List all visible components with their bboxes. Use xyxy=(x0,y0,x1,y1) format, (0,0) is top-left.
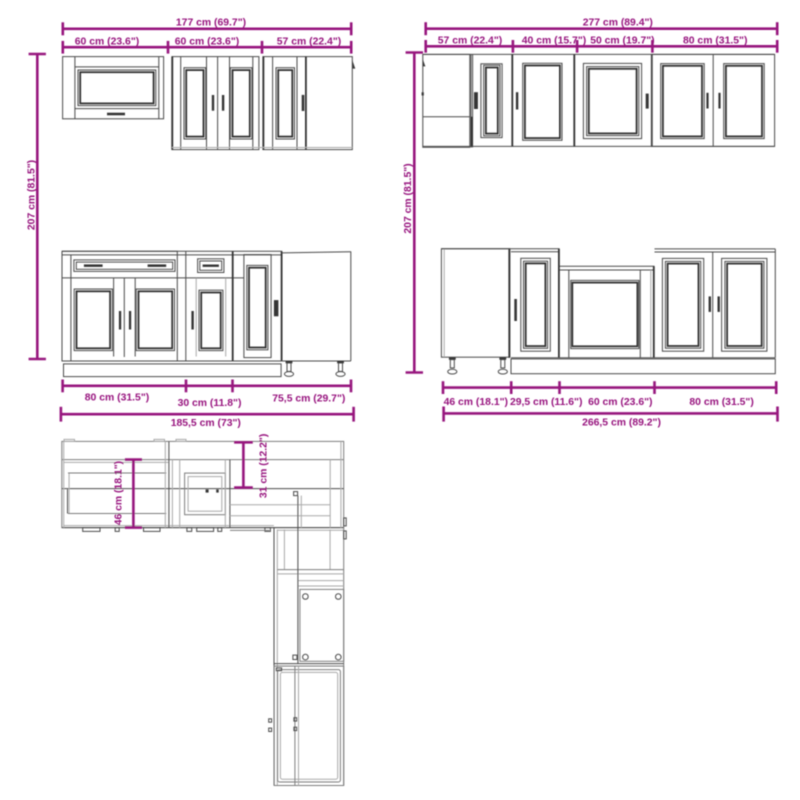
svg-text:60 cm (23.6"): 60 cm (23.6") xyxy=(175,37,239,48)
svg-text:207 cm (81.5"): 207 cm (81.5") xyxy=(27,160,38,230)
svg-text:185,5 cm (73"): 185,5 cm (73") xyxy=(171,418,241,429)
svg-text:57 cm (22.4"): 57 cm (22.4") xyxy=(438,35,502,46)
svg-text:75,5 cm (29.7"): 75,5 cm (29.7") xyxy=(272,394,345,405)
svg-text:80 cm (31.5"): 80 cm (31.5") xyxy=(689,397,753,408)
svg-text:50 cm (19.7"): 50 cm (19.7") xyxy=(590,35,654,46)
svg-text:40 cm (15.7"): 40 cm (15.7") xyxy=(522,35,586,46)
svg-text:80 cm (31.5"): 80 cm (31.5") xyxy=(683,35,747,46)
svg-text:29,5 cm (11.6"): 29,5 cm (11.6") xyxy=(510,397,583,408)
svg-text:177 cm (69.7"): 177 cm (69.7") xyxy=(176,17,246,28)
svg-text:80 cm (31.5"): 80 cm (31.5") xyxy=(85,393,149,404)
svg-text:207 cm (81.5"): 207 cm (81.5") xyxy=(403,163,414,233)
svg-text:46 cm (18.1"): 46 cm (18.1") xyxy=(114,461,125,525)
svg-text:30 cm (11.8"): 30 cm (11.8") xyxy=(178,398,242,409)
svg-text:277 cm (89.4"): 277 cm (89.4") xyxy=(583,17,653,28)
svg-text:60 cm (23.6"): 60 cm (23.6") xyxy=(75,37,139,48)
svg-text:57 cm (22.4"): 57 cm (22.4") xyxy=(277,37,341,48)
svg-text:46 cm (18.1"): 46 cm (18.1") xyxy=(444,397,508,408)
svg-text:31 cm (12.2"): 31 cm (12.2") xyxy=(259,434,270,498)
svg-text:266,5 cm (89.2"): 266,5 cm (89.2") xyxy=(582,418,661,429)
svg-text:60 cm (23.6"): 60 cm (23.6") xyxy=(588,397,652,408)
